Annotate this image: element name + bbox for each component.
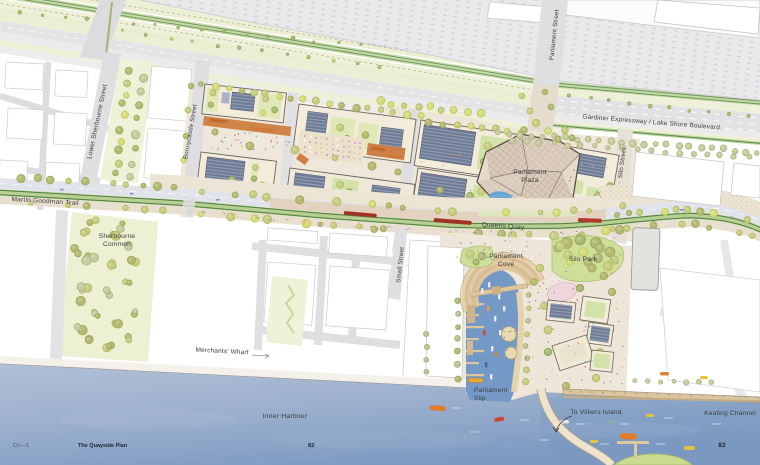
svg-text:Silo Park: Silo Park — [569, 256, 598, 263]
svg-text:Parliament: Parliament — [513, 169, 547, 176]
svg-text:Cove: Cove — [498, 261, 514, 268]
svg-text:Sherbourne: Sherbourne — [99, 233, 136, 240]
svg-text:Parliament: Parliament — [489, 253, 523, 260]
svg-text:To Villiers Island: To Villiers Island — [570, 409, 621, 416]
svg-text:Keating Channel: Keating Channel — [704, 410, 756, 417]
svg-text:Parliament: Parliament — [474, 387, 508, 394]
svg-text:Slip: Slip — [474, 395, 486, 402]
svg-text:82: 82 — [308, 443, 314, 449]
svg-text:83: 83 — [718, 442, 726, 449]
svg-text:Common: Common — [103, 241, 131, 248]
svg-text:Inner Harbour: Inner Harbour — [263, 413, 308, 420]
svg-text:The Quayside Plan: The Quayside Plan — [78, 443, 128, 449]
svg-text:Ch—1: Ch—1 — [13, 443, 29, 449]
svg-text:Plaza: Plaza — [521, 177, 539, 184]
